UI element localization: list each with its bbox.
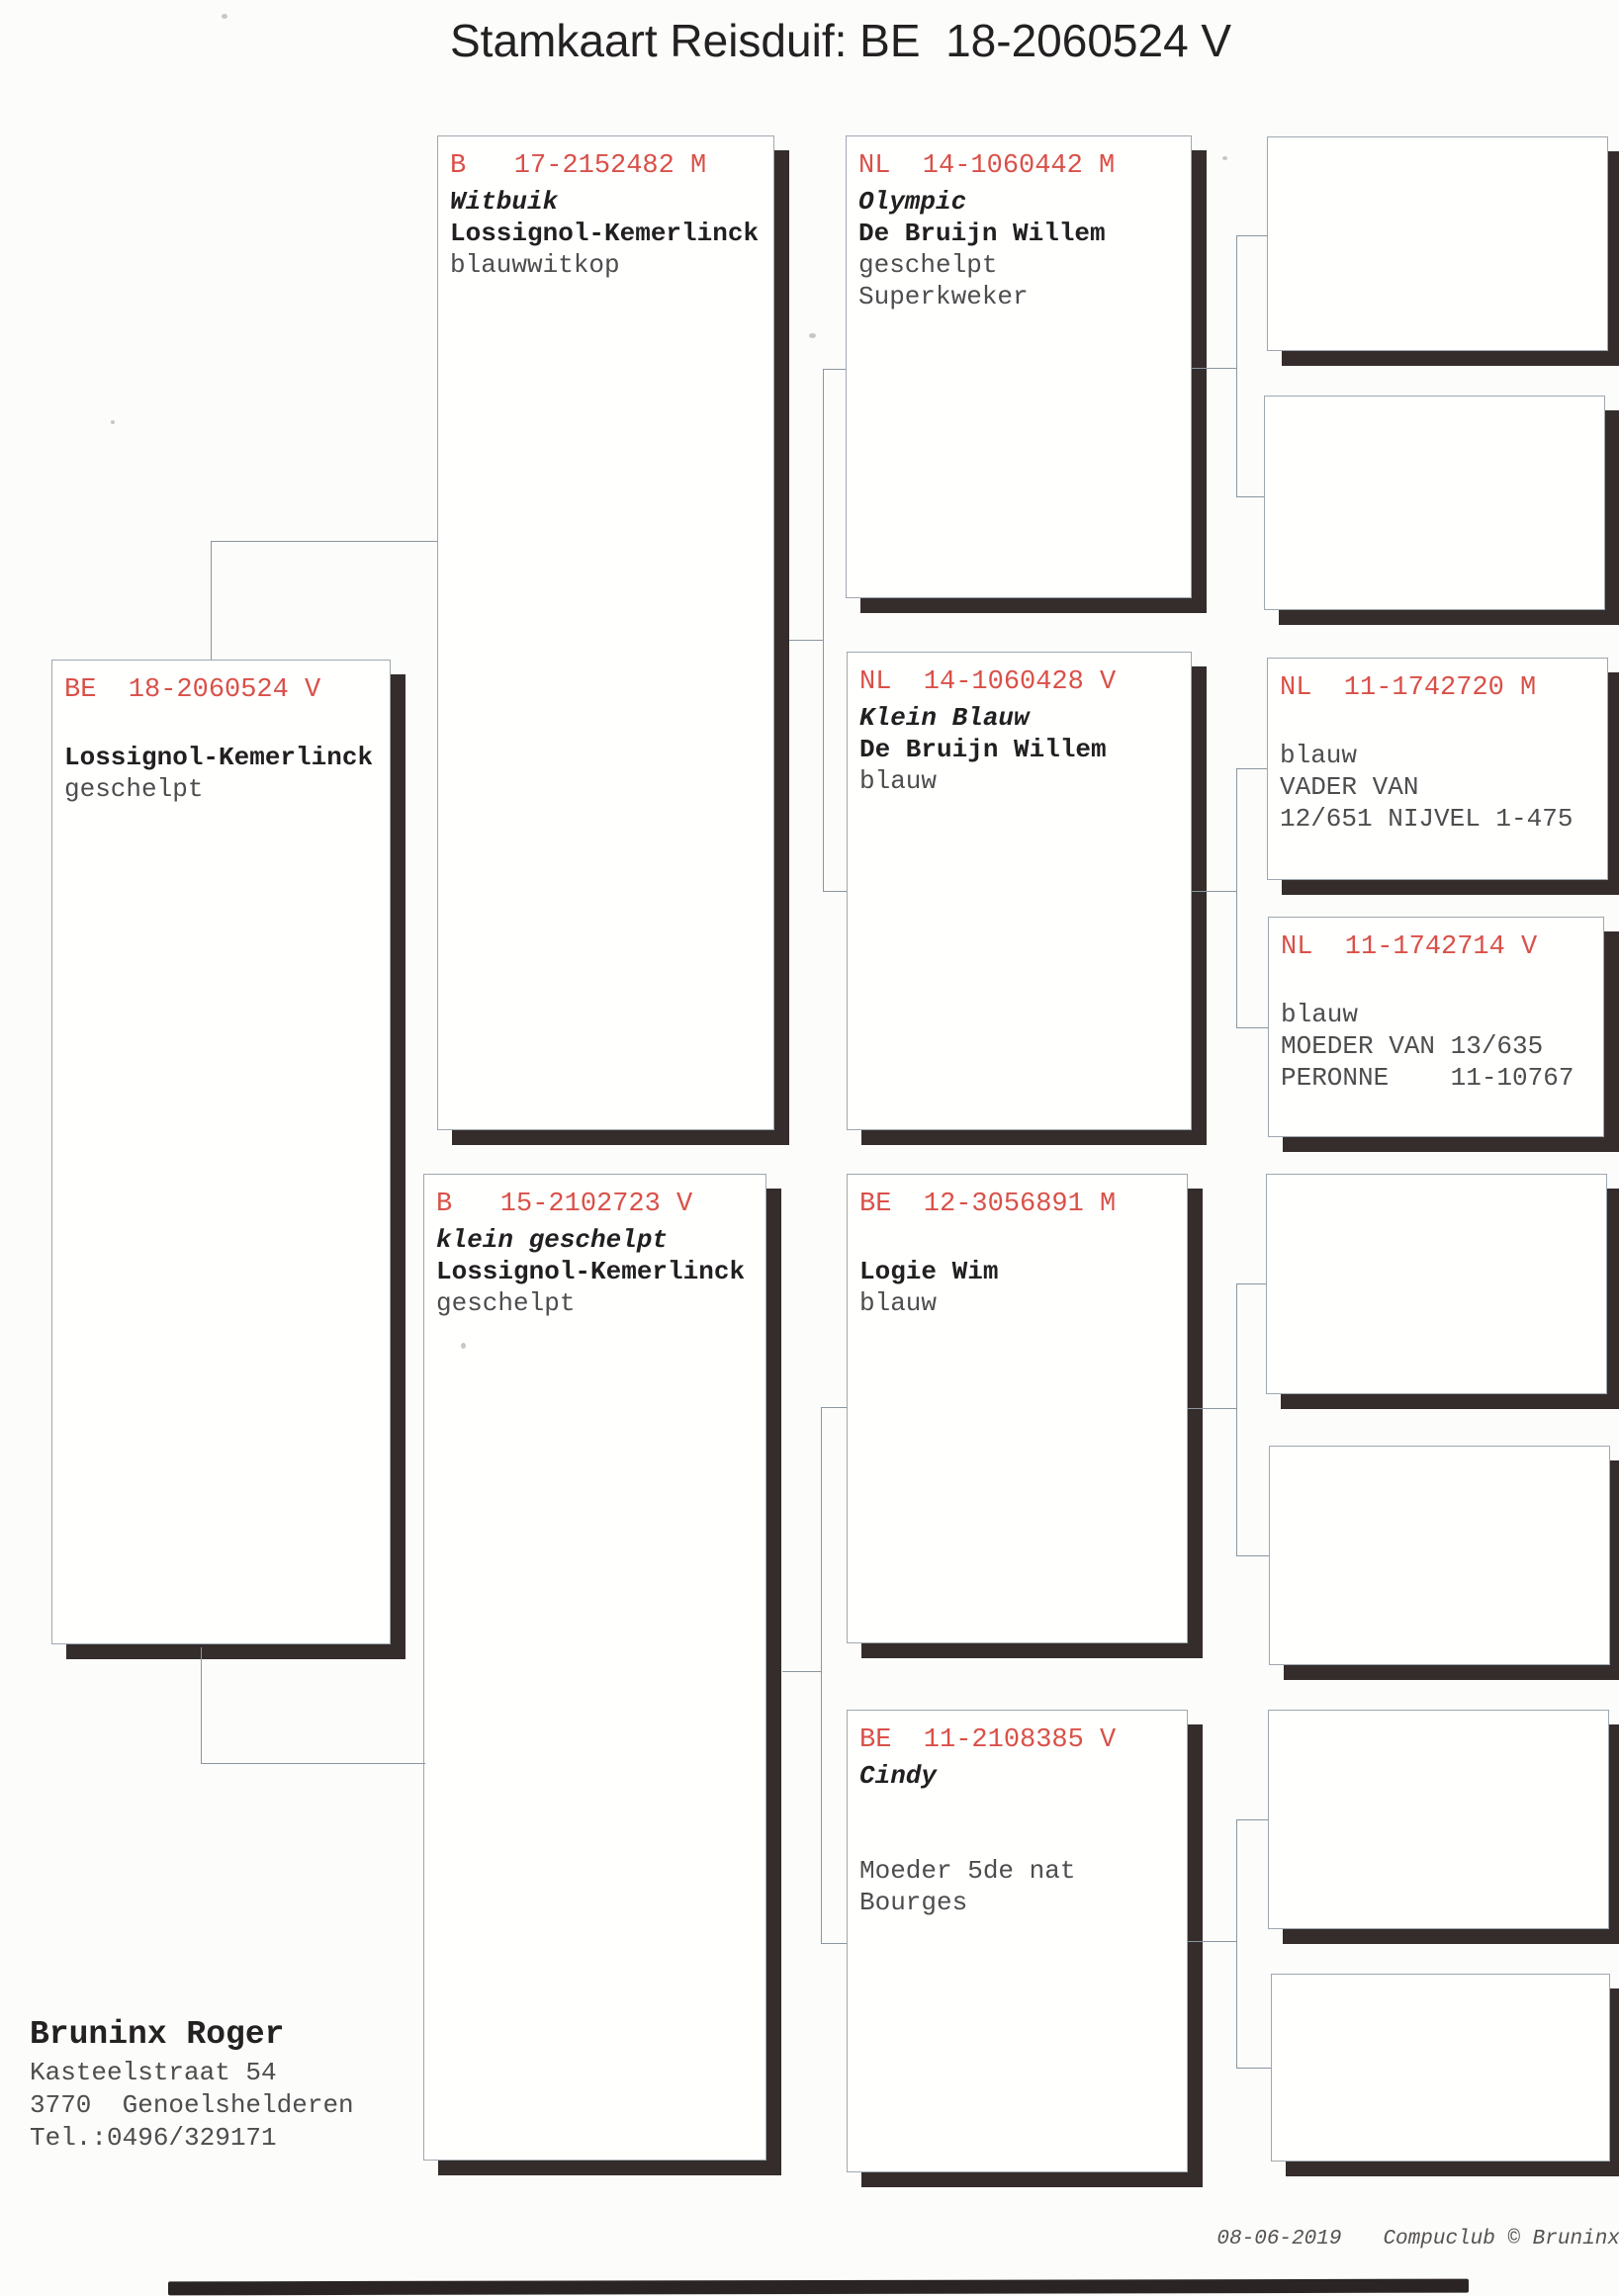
scan-speck xyxy=(111,420,115,424)
connector-line xyxy=(821,1943,847,1944)
ring-number: NL 11-1742720 M xyxy=(1280,668,1595,708)
ring-number: B 17-2152482 M xyxy=(450,146,762,186)
connector-line xyxy=(1192,368,1236,369)
connector-line xyxy=(1236,1283,1266,1284)
pedigree-box-nl720: NL 11-1742720 M blauw VADER VAN 12/651 N… xyxy=(1267,658,1608,880)
pedigree-box-nl428: NL 14-1060428 V Klein Blauw De Bruijn Wi… xyxy=(847,652,1192,1130)
pigeon-name: Klein Blauw xyxy=(859,702,1179,734)
connector-line xyxy=(1236,496,1264,497)
connector-line xyxy=(789,640,823,641)
note-line: MOEDER VAN 13/635 xyxy=(1281,1030,1591,1062)
connector-line xyxy=(1236,235,1237,496)
empty-box-2 xyxy=(1264,396,1605,610)
connector-line xyxy=(1236,1819,1237,2068)
color-note: blauw xyxy=(1280,740,1595,771)
pedigree-box-nl442: NL 14-1060442 M Olympic De Bruijn Willem… xyxy=(846,135,1192,598)
breeder-name: Lossignol-Kemerlinck xyxy=(436,1256,754,1287)
empty-box-1 xyxy=(1267,136,1608,351)
breeder-name: Lossignol-Kemerlinck xyxy=(450,218,762,249)
breeder-name: Lossignol-Kemerlinck xyxy=(64,742,378,773)
connector-line xyxy=(823,891,847,892)
connector-line xyxy=(782,1671,821,1672)
scan-speck xyxy=(461,1343,466,1349)
ring-number: NL 14-1060442 M xyxy=(858,146,1179,186)
connector-line xyxy=(1236,768,1237,1027)
footer: 08-06-2019Compuclub © Bruninx Roger xyxy=(1167,2205,1619,2273)
empty-box-5 xyxy=(1266,1174,1607,1394)
pigeon-name: Cindy xyxy=(859,1760,1175,1792)
blank-line xyxy=(859,1792,1175,1823)
connector-line xyxy=(1236,768,1267,769)
blank-line xyxy=(64,710,378,742)
pedigree-box-be18: BE 18-2060524 V Lossignol-Kemerlinck ges… xyxy=(51,660,391,1644)
connector-line xyxy=(1236,1555,1269,1556)
connector-line xyxy=(1188,1408,1236,1409)
color-note: blauw xyxy=(1281,999,1591,1030)
breeder-name: Logie Wim xyxy=(859,1256,1175,1287)
note-line: 12/651 NIJVEL 1-475 xyxy=(1280,803,1595,835)
scan-speck xyxy=(222,14,227,19)
connector-line xyxy=(823,369,846,370)
connector-line xyxy=(1192,891,1236,892)
pedigree-box-nl714: NL 11-1742714 V blauw MOEDER VAN 13/635 … xyxy=(1268,917,1604,1137)
empty-box-6 xyxy=(1269,1446,1610,1665)
connector-line xyxy=(1236,1283,1237,1555)
blank-line xyxy=(859,1224,1175,1256)
blank-line xyxy=(859,1823,1175,1855)
breeder-name: De Bruijn Willem xyxy=(859,734,1179,765)
connector-line xyxy=(1236,2068,1271,2069)
pedigree-box-be12: BE 12-3056891 M Logie Wim blauw xyxy=(847,1174,1188,1643)
pedigree-box-b15: B 15-2102723 V klein geschelpt Lossignol… xyxy=(423,1174,766,2161)
page-title: Stamkaart Reisduif: BE 18-2060524 V xyxy=(450,14,1231,67)
note-line: Superkweker xyxy=(858,281,1179,312)
pigeon-name: klein geschelpt xyxy=(436,1224,754,1256)
pedigree-box-b17: B 17-2152482 M Witbuik Lossignol-Kemerli… xyxy=(437,135,774,1130)
ring-number: BE 12-3056891 M xyxy=(859,1185,1175,1224)
scan-speck xyxy=(1222,156,1227,160)
connector-line xyxy=(1236,1027,1268,1028)
connector-line xyxy=(821,1407,847,1408)
color-note: geschelpt xyxy=(64,773,378,805)
connector-line xyxy=(821,1407,822,1943)
pigeon-name: Witbuik xyxy=(450,186,762,218)
owner-phone: Tel.:0496/329171 xyxy=(30,2122,354,2155)
note-line: Bourges xyxy=(859,1887,1175,1918)
empty-box-8 xyxy=(1271,1974,1610,2162)
scan-speck xyxy=(809,333,816,338)
connector-line xyxy=(1236,1819,1268,1820)
owner-name: Bruninx Roger xyxy=(30,2013,354,2057)
ring-number: NL 14-1060428 V xyxy=(859,662,1179,702)
ring-number: NL 11-1742714 V xyxy=(1281,927,1591,967)
empty-box-7 xyxy=(1268,1710,1609,1929)
connector-line xyxy=(211,541,212,660)
color-note: blauw xyxy=(859,1287,1175,1319)
note-line: PERONNE 11-10767 xyxy=(1281,1062,1591,1094)
color-note: geschelpt xyxy=(436,1287,754,1319)
ring-number: BE 11-2108385 V xyxy=(859,1721,1175,1760)
blank-line xyxy=(1281,967,1591,999)
note-line: VADER VAN xyxy=(1280,771,1595,803)
owner-street: Kasteelstraat 54 xyxy=(30,2057,354,2089)
footer-date: 08-06-2019 xyxy=(1216,2228,1341,2251)
connector-line xyxy=(201,1763,425,1764)
owner-info: Bruninx Roger Kasteelstraat 54 3770 Geno… xyxy=(30,2013,354,2155)
connector-line xyxy=(211,541,437,542)
footer-credit: Compuclub © Bruninx Roger xyxy=(1383,2228,1619,2251)
color-note: geschelpt xyxy=(858,249,1179,281)
connector-line xyxy=(1236,235,1267,236)
ring-number: B 15-2102723 V xyxy=(436,1185,754,1224)
breeder-name: De Bruijn Willem xyxy=(858,218,1179,249)
connector-line xyxy=(823,369,824,891)
connector-line xyxy=(1188,1941,1236,1942)
scan-artifact-bar xyxy=(168,2279,1469,2296)
note-line: Moeder 5de nat xyxy=(859,1855,1175,1887)
color-note: blauw xyxy=(859,765,1179,797)
pigeon-name: Olympic xyxy=(858,186,1179,218)
pedigree-card: Stamkaart Reisduif: BE 18-2060524 V BE 1… xyxy=(0,0,1619,2296)
connector-line xyxy=(201,1647,202,1763)
blank-line xyxy=(1280,708,1595,740)
ring-number: BE 18-2060524 V xyxy=(64,670,378,710)
owner-city: 3770 Genoelshelderen xyxy=(30,2089,354,2122)
color-note: blauwwitkop xyxy=(450,249,762,281)
pedigree-box-be11: BE 11-2108385 V Cindy Moeder 5de nat Bou… xyxy=(847,1710,1188,2172)
